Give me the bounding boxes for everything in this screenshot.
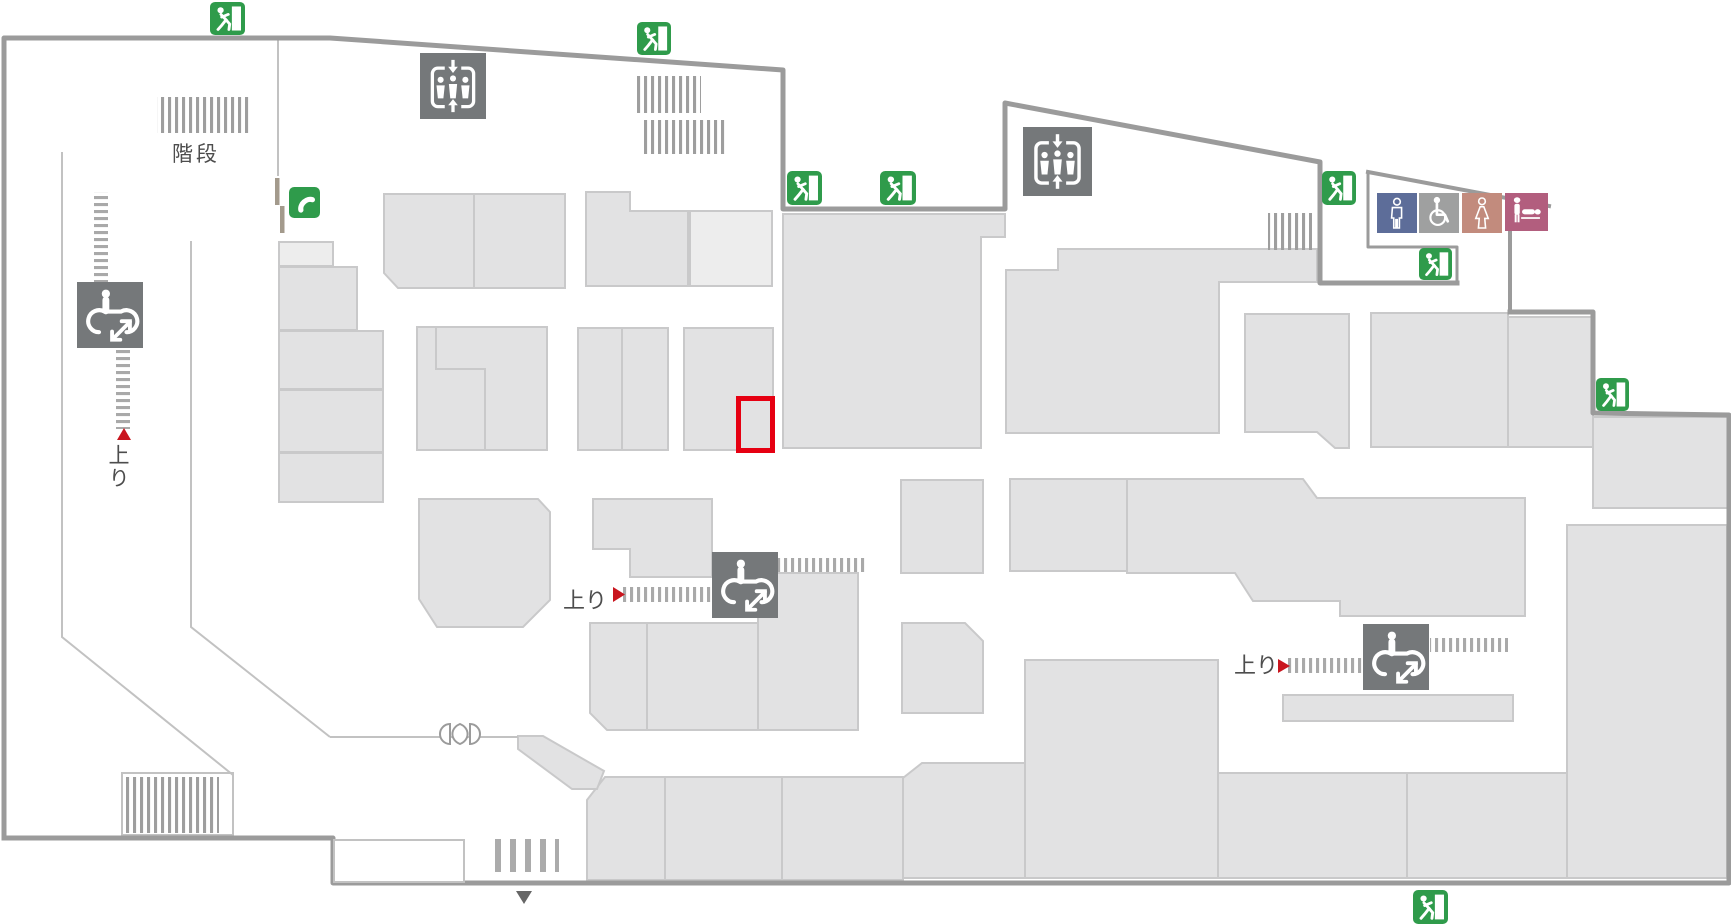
escalator-icon	[77, 282, 143, 348]
store-unit	[474, 194, 565, 288]
store-unit	[665, 777, 782, 880]
store-unit	[578, 328, 622, 450]
store-unit	[1567, 525, 1727, 878]
highlighted-location-box	[736, 396, 775, 453]
store-unit	[1010, 479, 1127, 571]
store-unit	[1371, 313, 1508, 447]
store-unit	[782, 777, 903, 880]
exit-icon	[1413, 890, 1448, 924]
store-unit	[419, 499, 550, 627]
store-unit	[690, 211, 772, 286]
stairs-top-center-2	[643, 120, 728, 154]
store-unit	[279, 267, 357, 330]
escalator-icon	[712, 552, 778, 618]
escalator-track	[622, 587, 712, 602]
up-label-left: 上り	[102, 444, 132, 490]
escalator-icon	[1363, 624, 1429, 690]
store-unit	[1593, 417, 1729, 508]
exit-icon	[637, 22, 671, 55]
escalator-track	[116, 348, 130, 429]
exit-icon	[880, 171, 916, 205]
exit-icon	[1322, 171, 1356, 205]
store-unit	[1218, 773, 1407, 878]
store-unit	[279, 242, 333, 266]
floor-plan-canvas	[0, 0, 1731, 924]
exit-icon	[787, 171, 822, 205]
stairs-bottom-left	[126, 777, 219, 833]
store-unit	[586, 192, 688, 286]
baby-changing-icon	[1505, 193, 1548, 231]
store-unit	[1025, 660, 1218, 878]
ramp	[518, 736, 604, 789]
exit-icon	[1419, 248, 1452, 280]
store-unit	[384, 194, 474, 288]
store-unit	[279, 331, 383, 389]
exit-icon	[1596, 378, 1629, 411]
phone-icon	[289, 187, 320, 218]
floor-map: 階段 上り 上り 上り	[0, 0, 1731, 924]
store-unit	[1407, 773, 1567, 878]
stairs-top-left	[157, 97, 249, 133]
store-unit	[647, 623, 758, 730]
elevator-icon	[1023, 127, 1092, 196]
stairs-top-center-1	[637, 76, 701, 113]
exit-icon	[210, 2, 245, 35]
escalator-track	[1288, 658, 1363, 673]
accessible-toilet-icon	[1419, 193, 1459, 233]
entrance-arrow	[516, 891, 532, 904]
store-unit	[279, 390, 383, 452]
elevator-icon	[420, 53, 486, 119]
store-unit	[901, 480, 983, 573]
store-unit	[1245, 314, 1349, 448]
entrance-ticks	[492, 839, 559, 872]
store-unit	[783, 214, 1005, 448]
escalator-track	[778, 558, 865, 572]
escalator-track	[1430, 638, 1508, 652]
stairs-right	[1268, 213, 1312, 250]
entrance-alcove	[334, 840, 464, 882]
store-unit	[1127, 479, 1525, 616]
store-unit	[279, 453, 383, 502]
store-unit	[593, 499, 712, 577]
womens-toilet-icon	[1462, 193, 1502, 233]
escalator-track	[94, 192, 108, 282]
stairs-label: 階段	[172, 138, 220, 168]
store-unit	[1508, 317, 1593, 447]
store-unit	[587, 777, 665, 880]
up-label-right: 上り	[1234, 648, 1278, 680]
walls	[4, 38, 1729, 883]
store-unit	[622, 328, 668, 450]
store-unit	[590, 623, 647, 730]
revolving-door-icon	[440, 724, 480, 744]
up-label-center: 上り	[563, 583, 607, 615]
store-unit	[1283, 695, 1513, 721]
store-unit	[902, 623, 983, 713]
up-arrow-left	[117, 428, 131, 440]
store-unit	[903, 763, 1025, 878]
door-marker	[275, 178, 285, 233]
mens-toilet-icon	[1377, 193, 1417, 233]
